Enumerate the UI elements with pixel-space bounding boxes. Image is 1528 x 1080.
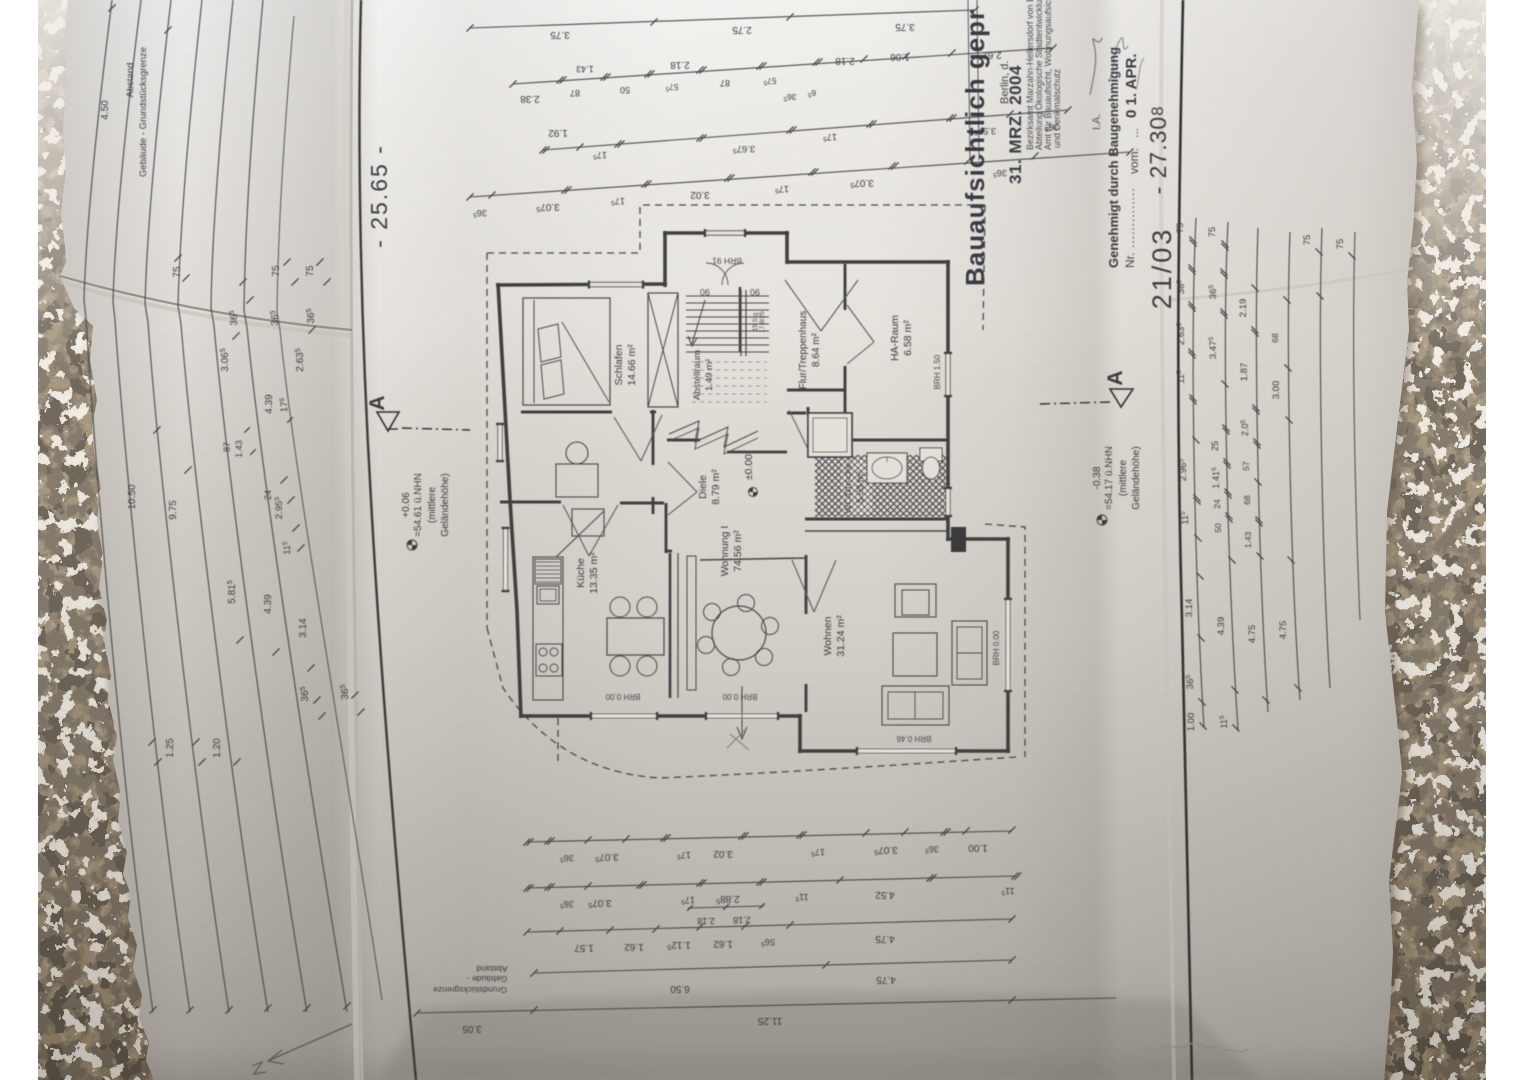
svg-text:3.00: 3.00 [1271,381,1282,400]
svg-text:3.14: 3.14 [1184,599,1195,618]
svg-text:1.87: 1.87 [1239,363,1250,382]
svg-text:75: 75 [1302,235,1313,246]
svg-text:25: 25 [1210,441,1220,451]
svg-text:1.43: 1.43 [576,64,594,74]
svg-text:14.66 m²: 14.66 m² [626,344,638,386]
svg-text:15 Stg: 15 Stg [752,312,759,331]
svg-text:2.18: 2.18 [697,916,715,926]
svg-text:3.75: 3.75 [550,29,570,40]
svg-text:31.24 m²: 31.24 m² [835,615,847,657]
svg-text:- 27.308: - 27.308 [1145,106,1171,195]
svg-text:4.75: 4.75 [875,933,895,944]
svg-text:50: 50 [620,85,630,95]
svg-text:2.75: 2.75 [732,24,752,35]
svg-text:A: A [366,395,389,410]
svg-text:Wohnung I: Wohnung I [719,526,731,577]
svg-text:Grundstücksgrenze: Grundstücksgrenze [433,985,507,995]
svg-text:+0.06: +0.06 [401,492,412,518]
svg-text:3.14: 3.14 [298,618,309,638]
svg-text:BRH 0.00: BRH 0.00 [722,692,757,701]
svg-text:=54.17 ü.NHN: =54.17 ü.NHN [1104,446,1115,510]
svg-text:2.19: 2.19 [1238,299,1249,318]
svg-text:31. MRZ. 2004: 31. MRZ. 2004 [1006,65,1025,184]
svg-text:24: 24 [1212,499,1222,509]
svg-text:Geländehöhe): Geländehöhe) [1131,446,1142,509]
svg-text:BRH 0.00: BRH 0.00 [605,692,640,701]
svg-text:BRH 1.50: BRH 1.50 [933,354,942,389]
svg-text:3.75: 3.75 [895,21,915,32]
svg-text:- 25.65 -: - 25.65 - [366,144,392,248]
svg-text:8.79 m²: 8.79 m² [710,469,722,505]
svg-text:90: 90 [750,287,760,297]
svg-text:3.02: 3.02 [713,848,733,859]
svg-text:24: 24 [263,490,273,500]
svg-text:3.05: 3.05 [462,1023,482,1034]
svg-text:4.39: 4.39 [263,594,274,614]
svg-text:Küche: Küche [575,558,587,588]
svg-text:75: 75 [1207,227,1218,238]
svg-text:1.57: 1.57 [574,942,594,953]
svg-text:1.43: 1.43 [1243,531,1253,548]
svg-text:11.25: 11.25 [757,1015,782,1026]
svg-text:75: 75 [172,266,183,278]
svg-text:Abstellraum: Abstellraum [692,350,703,400]
svg-text:4.75: 4.75 [1247,625,1258,644]
svg-text:vom:: vom: [1127,148,1141,174]
svg-text:4.75: 4.75 [1278,621,1289,640]
svg-text:I.A.: I.A. [1091,113,1103,130]
svg-text:Diele: Diele [697,475,709,499]
svg-text:1.62: 1.62 [624,941,644,952]
svg-text:6.58 m²: 6.58 m² [902,320,914,356]
svg-text:Gebäude - Grundstücksgrenze: Gebäude - Grundstücksgrenze [138,47,149,177]
svg-text:2.18: 2.18 [670,59,690,70]
svg-text:57: 57 [1241,461,1251,471]
svg-text:Abstand: Abstand [476,964,507,974]
svg-text:HA-Raum: HA-Raum [889,315,901,361]
svg-text:1.92: 1.92 [548,127,568,138]
svg-text:8.64 m²: 8.64 m² [811,332,822,367]
svg-text:Schlafen: Schlafen [613,344,625,385]
svg-text:87: 87 [570,88,580,98]
svg-text:4.52: 4.52 [875,889,895,900]
svg-text:6.50: 6.50 [670,983,690,994]
svg-text:1.00: 1.00 [1186,713,1197,732]
svg-text:BRH 0.00: BRH 0.00 [992,630,1001,665]
svg-text:1.25: 1.25 [165,738,176,758]
svg-text:4.50: 4.50 [100,100,111,120]
svg-text:2.18: 2.18 [835,55,855,66]
svg-text:4.75: 4.75 [876,974,896,985]
svg-text:A: A [1104,370,1127,385]
svg-text:87: 87 [222,442,232,452]
svg-text:13.35 m²: 13.35 m² [588,552,600,594]
svg-text:1.20: 1.20 [212,738,223,758]
svg-text:Flur/Treppenhaus: Flur/Treppenhaus [798,311,809,390]
svg-text:±0.00: ±0.00 [743,454,755,480]
svg-text:68: 68 [1270,333,1280,343]
svg-text:und Denkmalschutz: und Denkmalschutz [1052,68,1062,148]
svg-text:Genehmigt durch Baugenehmigung: Genehmigt durch Baugenehmigung [1106,47,1121,268]
svg-text:75: 75 [305,265,316,277]
svg-text:1.62: 1.62 [713,938,733,949]
svg-text:1.06: 1.06 [890,51,910,62]
svg-text:0 1. APR.: 0 1. APR. [1123,54,1140,118]
svg-text:1.43: 1.43 [234,440,244,458]
svg-text:(mittlere: (mittlere [427,487,438,524]
svg-text:-0.38: -0.38 [1092,466,1103,489]
svg-text:50: 50 [1213,523,1223,533]
svg-text:75: 75 [271,265,282,277]
svg-text:90: 90 [700,287,710,297]
svg-text:Abstand: Abstand [125,63,136,98]
svg-text:17.8/25: 17.8/25 [759,311,766,333]
svg-text:9.75: 9.75 [168,500,179,520]
svg-text:Gebäude -: Gebäude - [467,974,507,984]
svg-text:10.50: 10.50 [127,484,138,509]
svg-text:74.56 m²: 74.56 m² [732,530,744,572]
svg-text:87: 87 [720,78,730,88]
svg-text:4.39: 4.39 [1216,617,1227,636]
svg-text:Nr.: Nr. [1123,253,1137,268]
svg-text:2.38: 2.38 [520,93,540,104]
svg-text:Wohnen: Wohnen [822,616,834,655]
svg-text:BRH 0.46: BRH 0.46 [896,734,931,743]
svg-text:68: 68 [1242,495,1252,505]
svg-text:2.18: 2.18 [733,915,751,925]
svg-text:3.02: 3.02 [690,189,710,200]
svg-text:(mittlere: (mittlere [1118,460,1129,497]
svg-text:...: ... [1127,128,1141,138]
svg-text:..............: .............. [1123,187,1137,248]
svg-text:1.00: 1.00 [968,842,988,853]
svg-text:Geländehöhe): Geländehöhe) [440,473,451,536]
svg-text:1.49 m²: 1.49 m² [704,359,715,391]
svg-text:=54.61 ü.NHN: =54.61 ü.NHN [413,473,424,537]
svg-text:Bauaufsichtlich gepr: Bauaufsichtlich gepr [960,9,990,286]
svg-text:75: 75 [1335,239,1346,250]
svg-text:4.39: 4.39 [264,394,275,414]
svg-text:21/03: 21/03 [1147,227,1177,310]
svg-text:BRH 91: BRH 91 [712,256,742,266]
